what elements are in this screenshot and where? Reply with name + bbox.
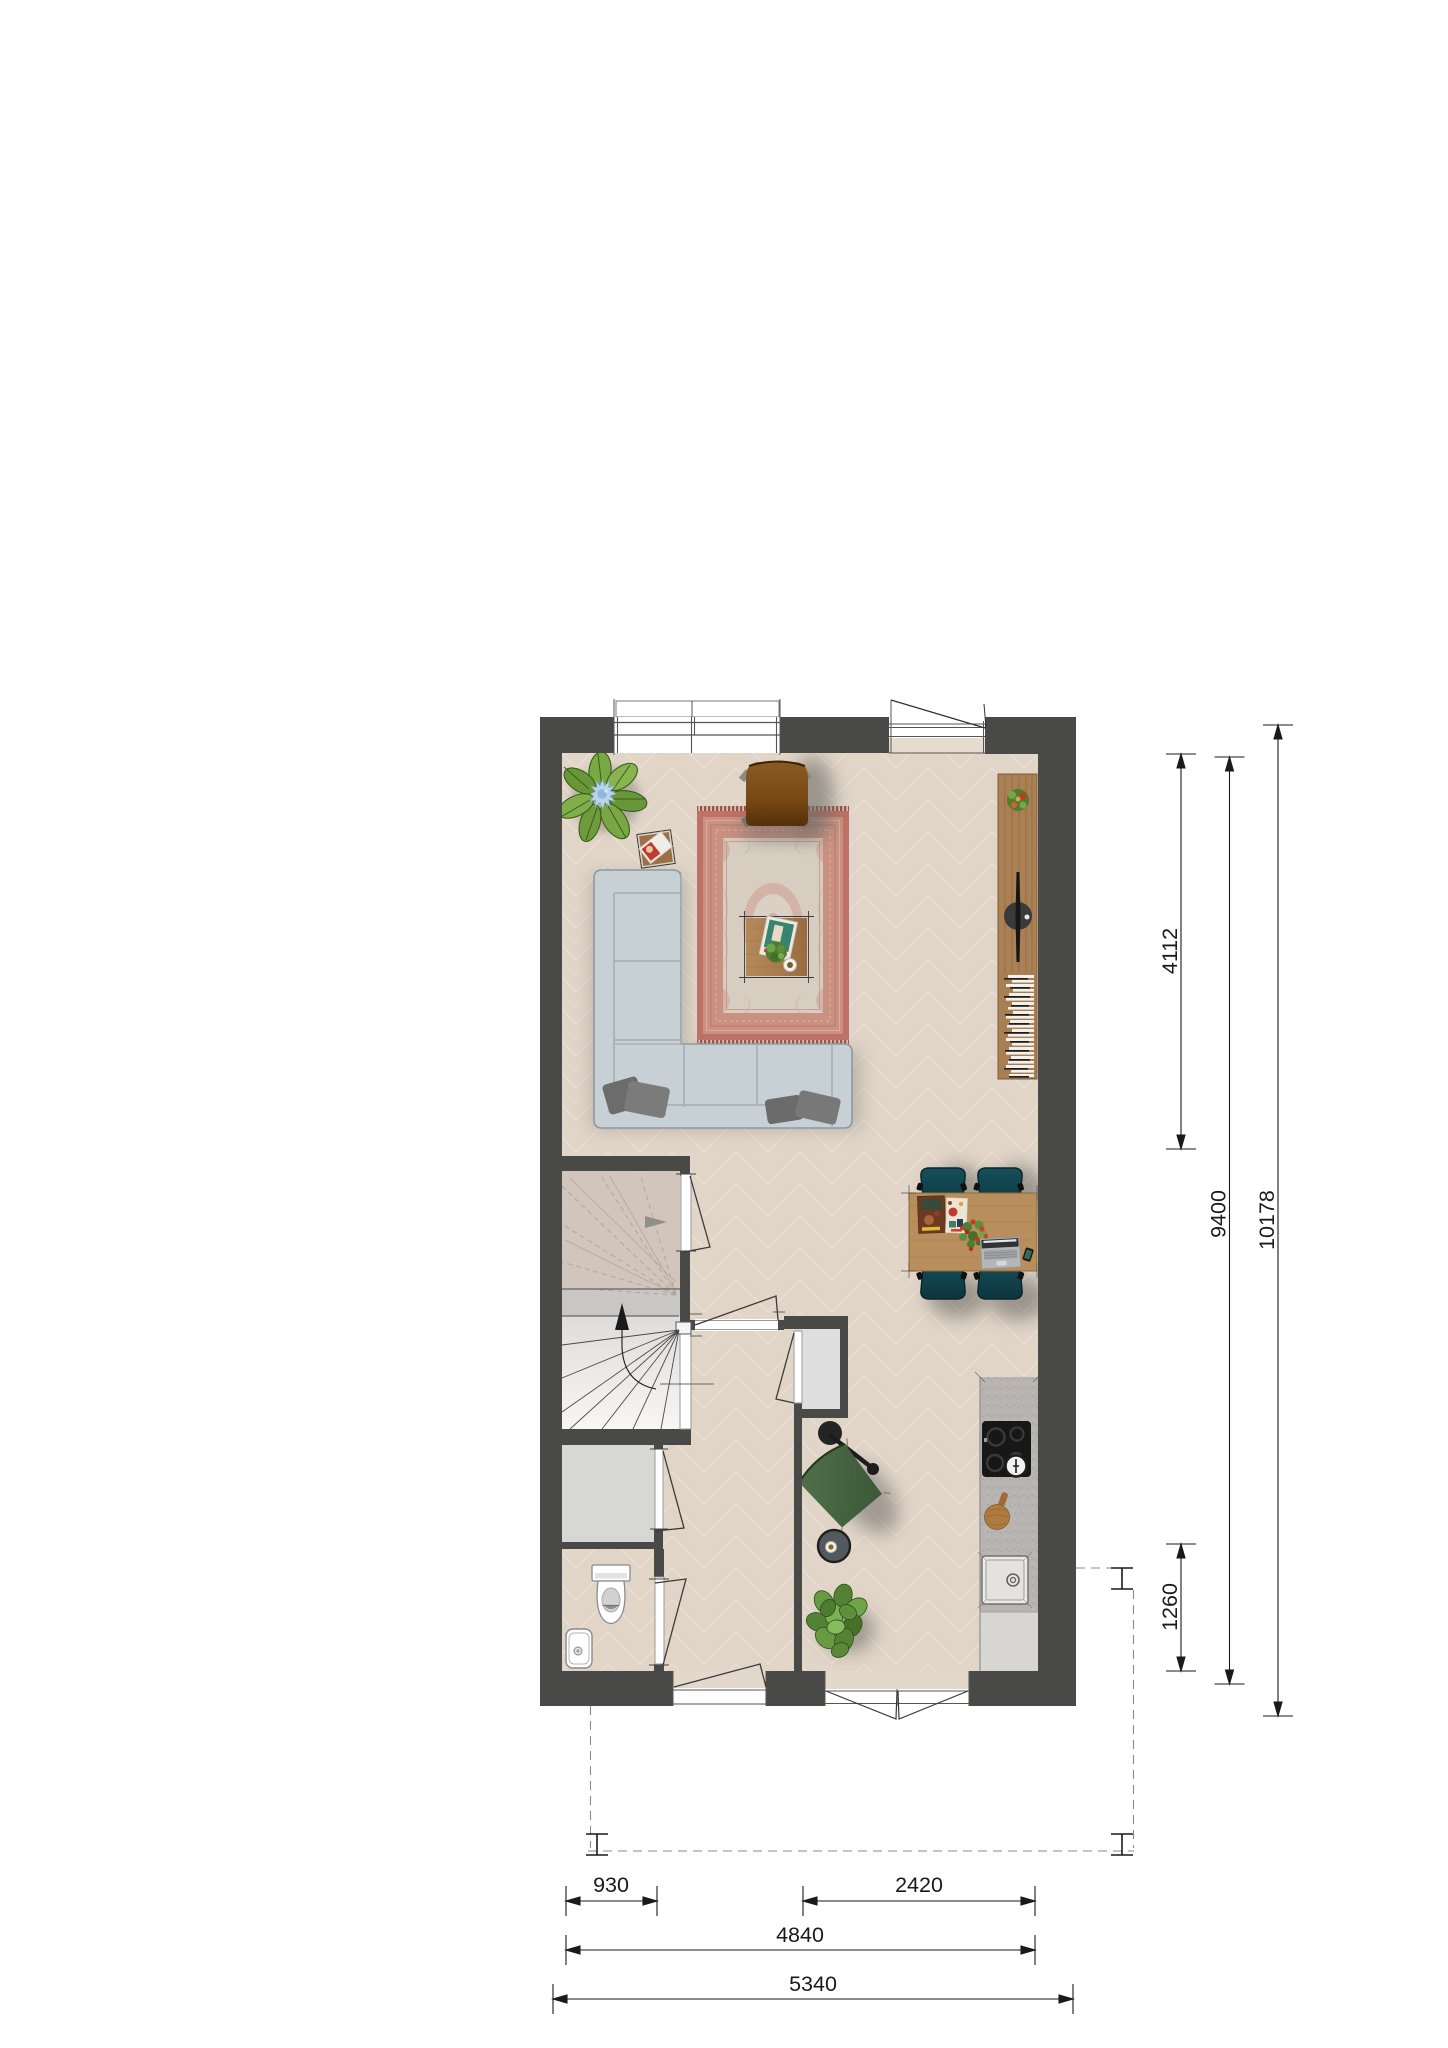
svg-text:4840: 4840 [776, 1923, 824, 1947]
svg-text:10178: 10178 [1255, 1190, 1279, 1250]
svg-text:930: 930 [593, 1873, 629, 1897]
svg-text:5340: 5340 [789, 1972, 837, 1996]
svg-text:2420: 2420 [895, 1873, 943, 1897]
svg-text:9400: 9400 [1207, 1190, 1231, 1238]
svg-text:4112: 4112 [1158, 928, 1182, 974]
svg-text:1260: 1260 [1158, 1583, 1182, 1631]
